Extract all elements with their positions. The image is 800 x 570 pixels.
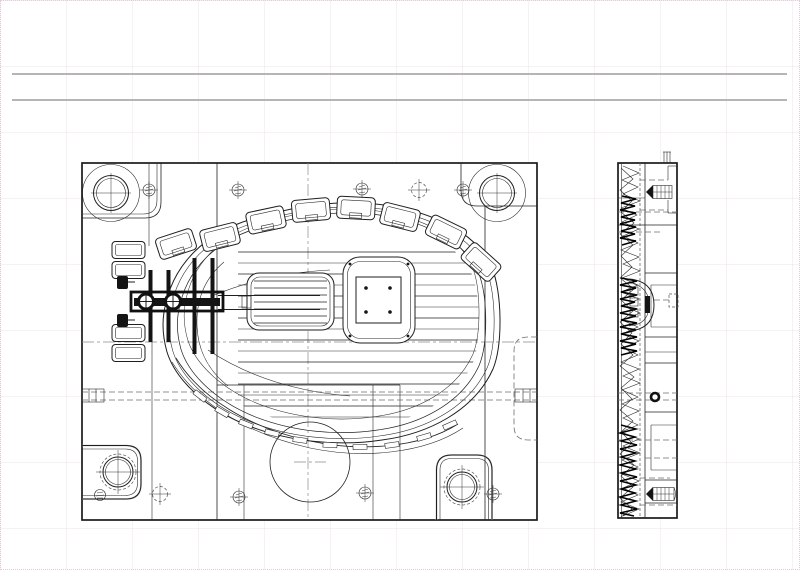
side-plate-outline bbox=[618, 163, 677, 518]
side-view bbox=[618, 152, 678, 518]
rib-insert-block bbox=[242, 273, 334, 330]
runner-fitting-lower bbox=[117, 314, 128, 327]
guide-hole-top-left bbox=[83, 165, 140, 222]
runner-screw-2 bbox=[166, 294, 181, 309]
runner-screw-1 bbox=[139, 294, 154, 309]
runner-fitting-upper bbox=[117, 276, 128, 289]
cad-drawing-canvas bbox=[0, 0, 800, 570]
plan-view bbox=[82, 163, 537, 520]
square-insert-frame bbox=[343, 257, 415, 343]
guide-hole-top-right bbox=[469, 165, 526, 222]
top-cap-pin bbox=[663, 152, 671, 163]
